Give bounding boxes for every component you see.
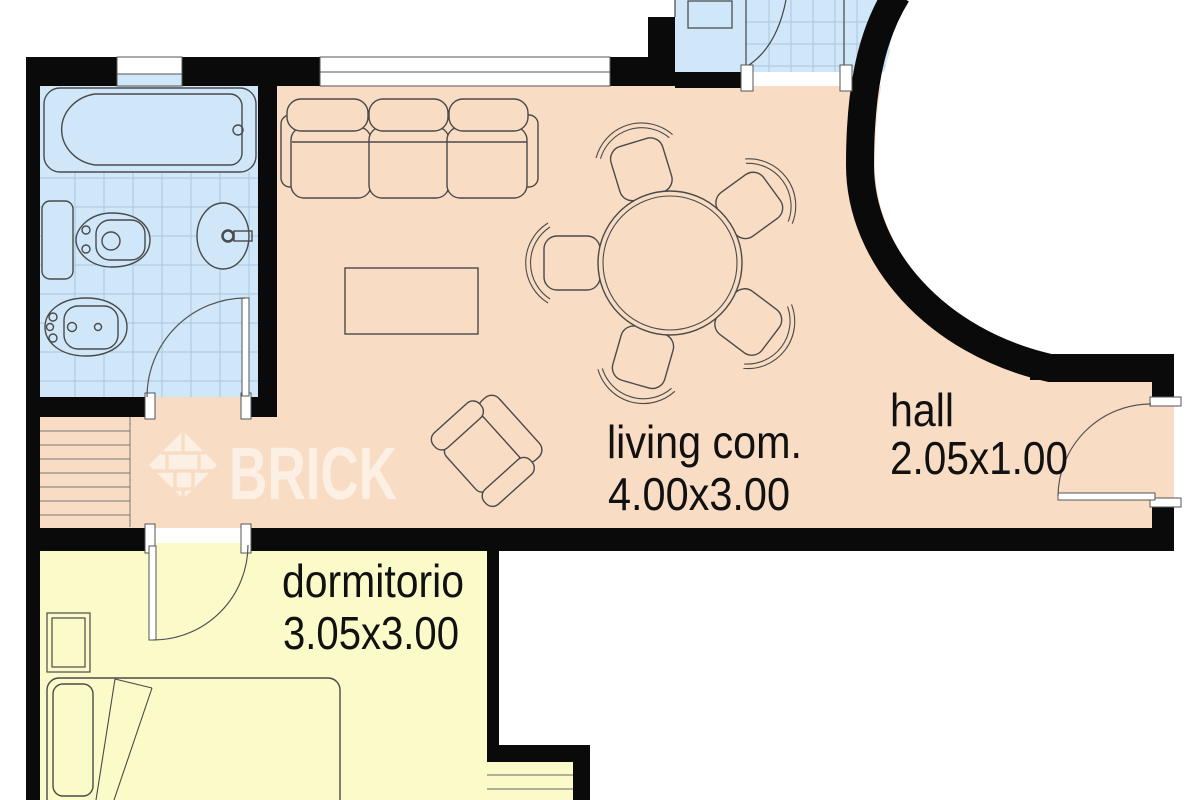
coffee-table bbox=[345, 268, 478, 334]
toilet-tank bbox=[42, 201, 73, 279]
nightstand bbox=[47, 613, 90, 672]
bathroom-window bbox=[117, 57, 182, 86]
wall-left bbox=[26, 57, 40, 800]
sofa-back-cushion bbox=[449, 99, 528, 131]
room-label-living: living com. bbox=[607, 416, 802, 468]
bed bbox=[47, 678, 340, 800]
wall-bathroom-bottom-left bbox=[40, 397, 147, 417]
bathtub bbox=[44, 88, 256, 172]
room-label-bedroom: dormitorio bbox=[282, 555, 464, 607]
wall-kitchen-step bbox=[648, 17, 675, 86]
sofa-back-cushion bbox=[369, 99, 448, 131]
pillow bbox=[53, 684, 93, 796]
wall-nook-right bbox=[573, 762, 590, 800]
floor-plan-page: BRICK living com. 4.00x3.00 hall 2.05x1.… bbox=[0, 0, 1192, 800]
room-dimensions-bedroom: 3.05x3.00 bbox=[283, 607, 459, 659]
wall-bathroom-right bbox=[258, 86, 277, 417]
watermark-brand: BRICK bbox=[229, 432, 397, 515]
wall-nook-step bbox=[487, 745, 590, 762]
living-room-window bbox=[320, 57, 610, 86]
floor-plan: BRICK living com. 4.00x3.00 hall 2.05x1.… bbox=[0, 0, 1192, 800]
room-dimensions-hall: 2.05x1.00 bbox=[890, 432, 1068, 484]
door-leaf bbox=[149, 546, 156, 640]
wall-bedroom-right bbox=[487, 543, 499, 745]
door-leaf bbox=[242, 298, 249, 396]
door-jamb bbox=[1150, 397, 1181, 406]
wall-main-bottom-right bbox=[251, 528, 1174, 551]
wall-right-lower bbox=[1152, 507, 1174, 551]
wall-top-b bbox=[182, 57, 320, 86]
wall-kitchen-bottom bbox=[675, 72, 745, 88]
door-jamb bbox=[241, 393, 251, 419]
room-label-hall: hall bbox=[890, 384, 954, 436]
outside-bottom-right bbox=[499, 551, 1192, 800]
dining-table bbox=[598, 191, 742, 335]
sofa bbox=[281, 99, 538, 198]
wall-main-bottom-left bbox=[26, 528, 147, 551]
door-jamb bbox=[241, 524, 251, 553]
bidet bbox=[45, 298, 127, 356]
door-leaf bbox=[1058, 493, 1155, 500]
sofa-back-cushion bbox=[287, 99, 368, 131]
wall-top-a bbox=[26, 57, 117, 86]
room-dimensions-living: 4.00x3.00 bbox=[608, 468, 790, 520]
wall-top-c bbox=[610, 57, 648, 86]
